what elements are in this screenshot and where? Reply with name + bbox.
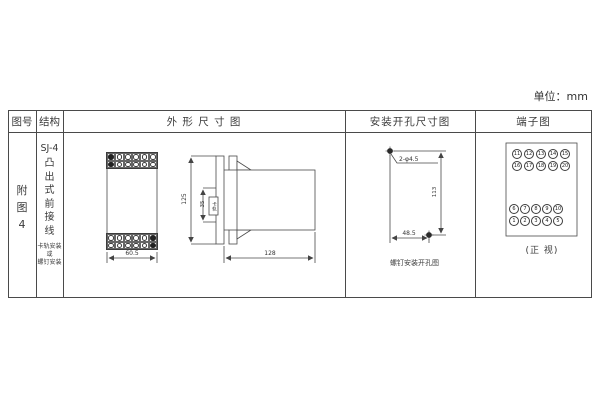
terminal-circle: 17: [524, 161, 534, 171]
terminal-circle: 10: [553, 204, 563, 214]
unit-label: 单位：mm: [500, 88, 588, 104]
header-terminal: 端子图: [475, 110, 592, 132]
mounting-caption: 螺钉安装开孔图: [372, 258, 457, 268]
front-view-bottom-terminals: [106, 233, 158, 250]
structure-model: SJ-4: [36, 143, 63, 154]
terminal-circle: 4: [542, 216, 552, 226]
terminal-circle: 2: [520, 216, 530, 226]
column-divider: [345, 110, 346, 298]
terminal-circle: 5: [553, 216, 563, 226]
column-divider: [475, 110, 476, 298]
header-mounting: 安装开孔尺寸图: [345, 110, 475, 132]
structure-mount-note: 卡轨安装 或 螺钉安装: [36, 243, 63, 267]
header-figure-no: 图号: [8, 110, 36, 132]
terminal-circle: 8: [531, 204, 541, 214]
dim-rail-width: 35: [199, 196, 207, 212]
terminal-circle: 6: [509, 204, 519, 214]
dim-front-width: 60.5: [112, 250, 152, 257]
terminal-circle: 3: [531, 216, 541, 226]
terminal-circle: 18: [536, 161, 546, 171]
dim-hole-horizontal: 48.5: [394, 230, 424, 237]
terminal-circle: 15: [560, 149, 570, 159]
terminal-circle: 11: [512, 149, 522, 159]
hole-size-label: 2-φ4.5: [399, 156, 418, 163]
terminal-circle: 7: [520, 204, 530, 214]
terminal-circle: 19: [548, 161, 558, 171]
terminal-circle: 13: [536, 149, 546, 159]
header-outline: 外 形 尺 寸 图: [63, 110, 345, 132]
column-divider: [63, 110, 64, 298]
terminal-circle: 12: [524, 149, 534, 159]
terminal-circle: 20: [560, 161, 570, 171]
rail-label: 卡轨: [209, 198, 218, 214]
header-structure: 结构: [36, 110, 63, 132]
structure-type: 凸 出 式 前 接 线: [36, 157, 63, 238]
terminal-circle: 9: [542, 204, 552, 214]
table-frame: [8, 110, 592, 298]
figure-number: 附 图 4: [8, 182, 36, 233]
terminal-circle: 16: [512, 161, 522, 171]
dim-depth: 128: [250, 250, 290, 257]
front-view-top-terminals: [106, 152, 158, 169]
dim-hole-vertical: 113: [431, 184, 439, 200]
header-divider: [8, 132, 592, 133]
terminal-caption: (正 视): [504, 243, 580, 256]
terminal-circle: 14: [548, 149, 558, 159]
technical-drawing-page: 单位：mm 图号 结构 外 形 尺 寸 图 安装开孔尺寸图 端子图 附 图 4 …: [0, 0, 600, 400]
dim-height: 125: [179, 189, 189, 209]
terminal-circle: 1: [509, 216, 519, 226]
